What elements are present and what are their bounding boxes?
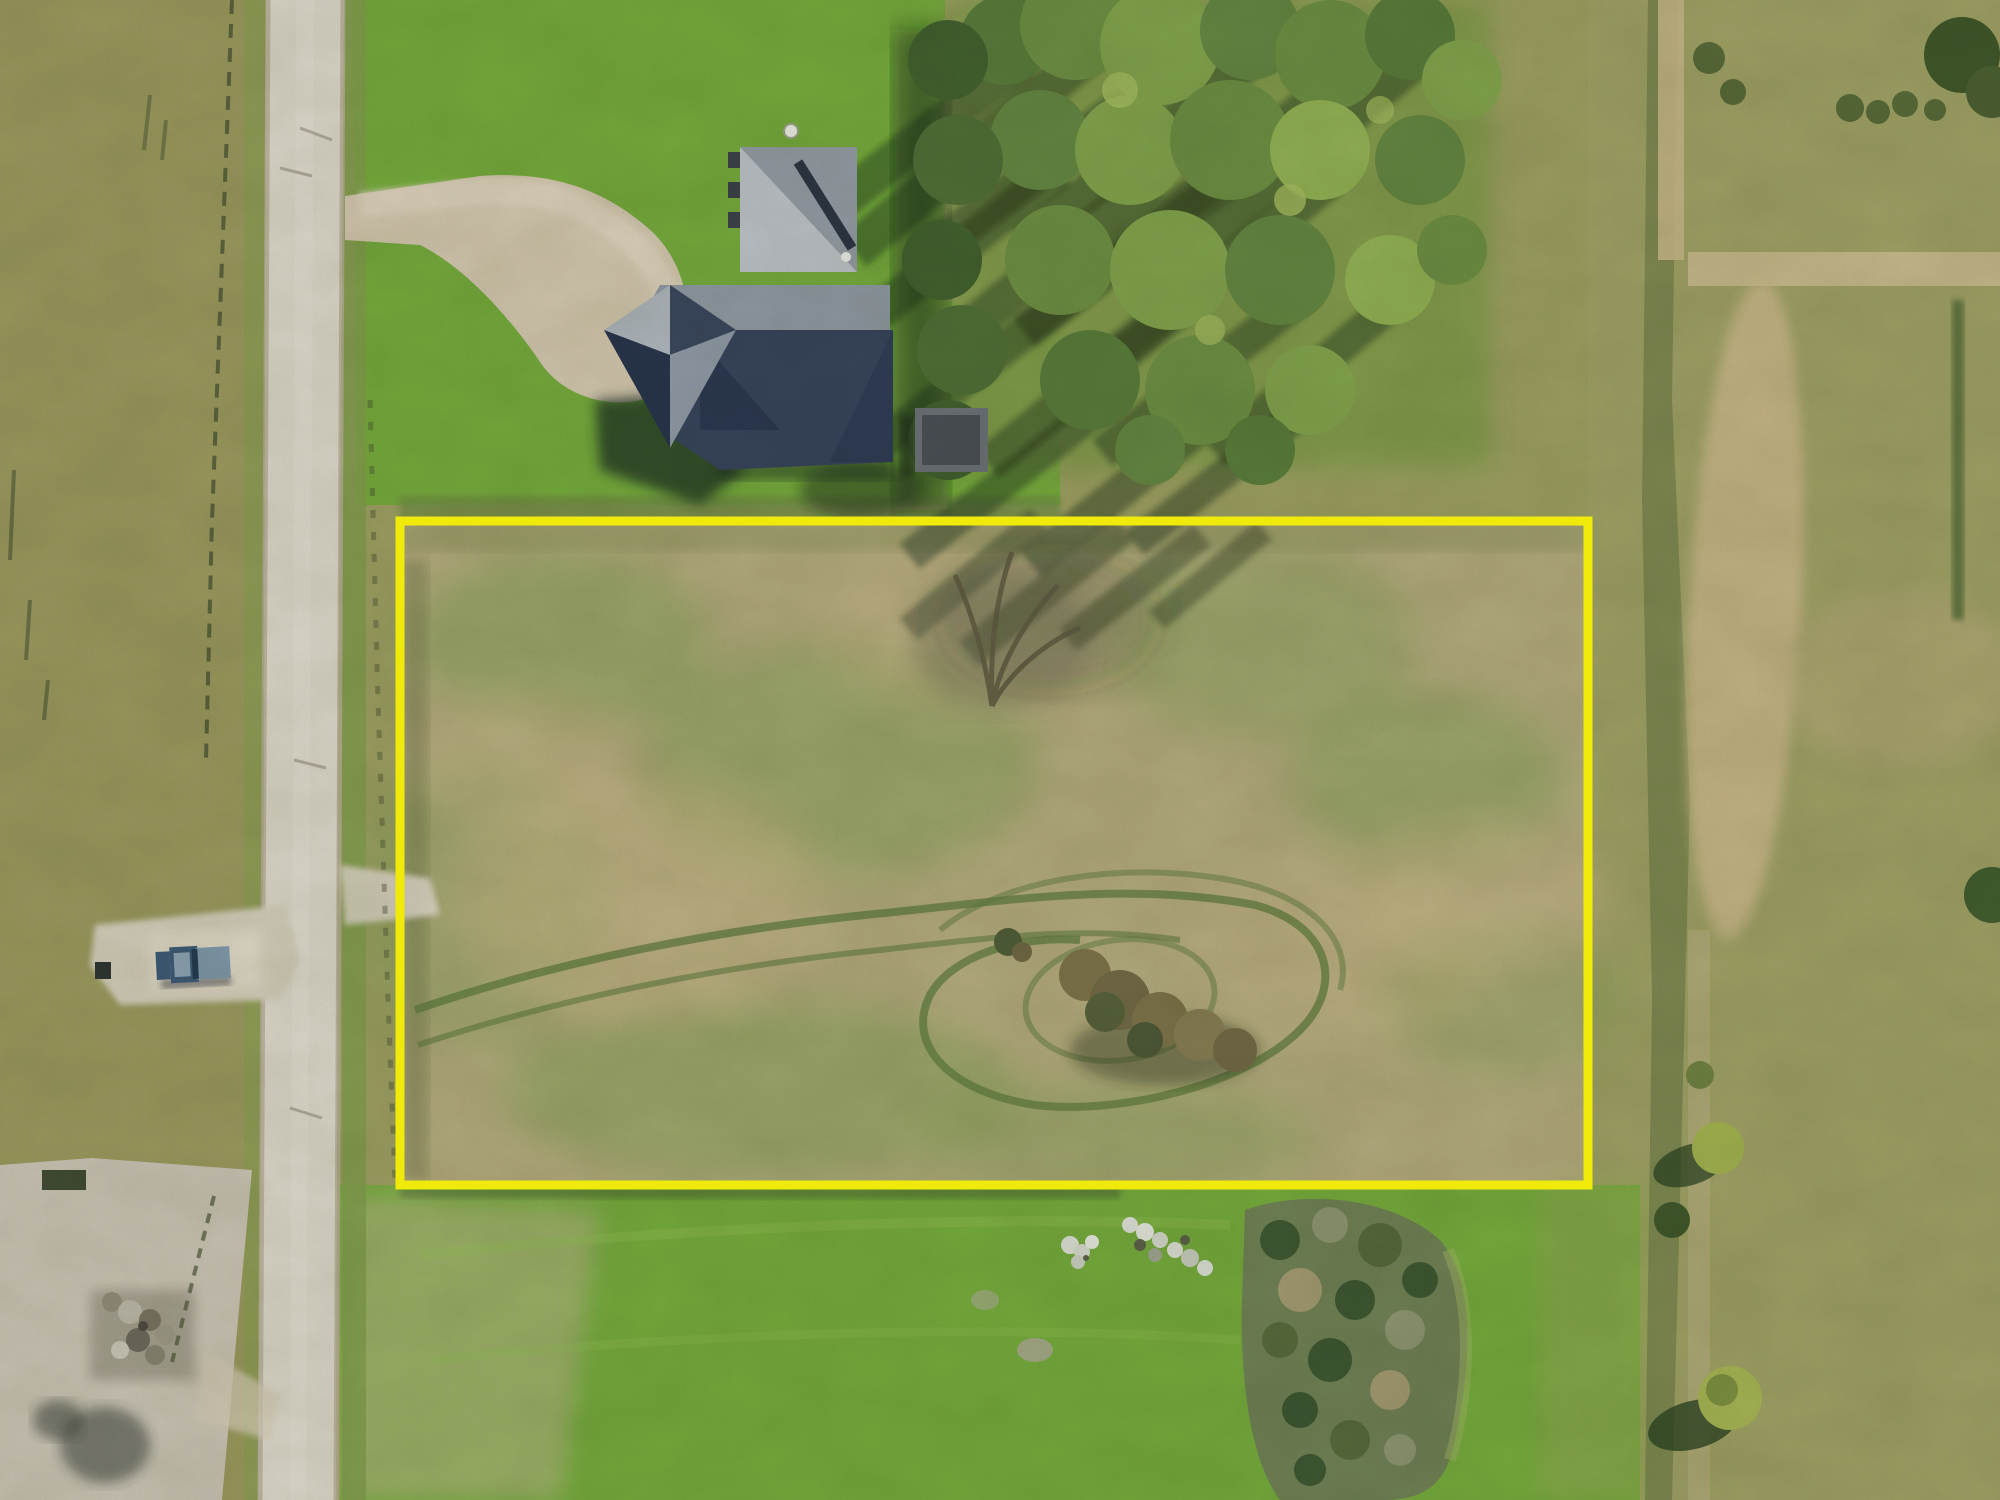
aerial-photo: [0, 0, 2000, 1500]
grain-overlay: [0, 0, 2000, 1500]
